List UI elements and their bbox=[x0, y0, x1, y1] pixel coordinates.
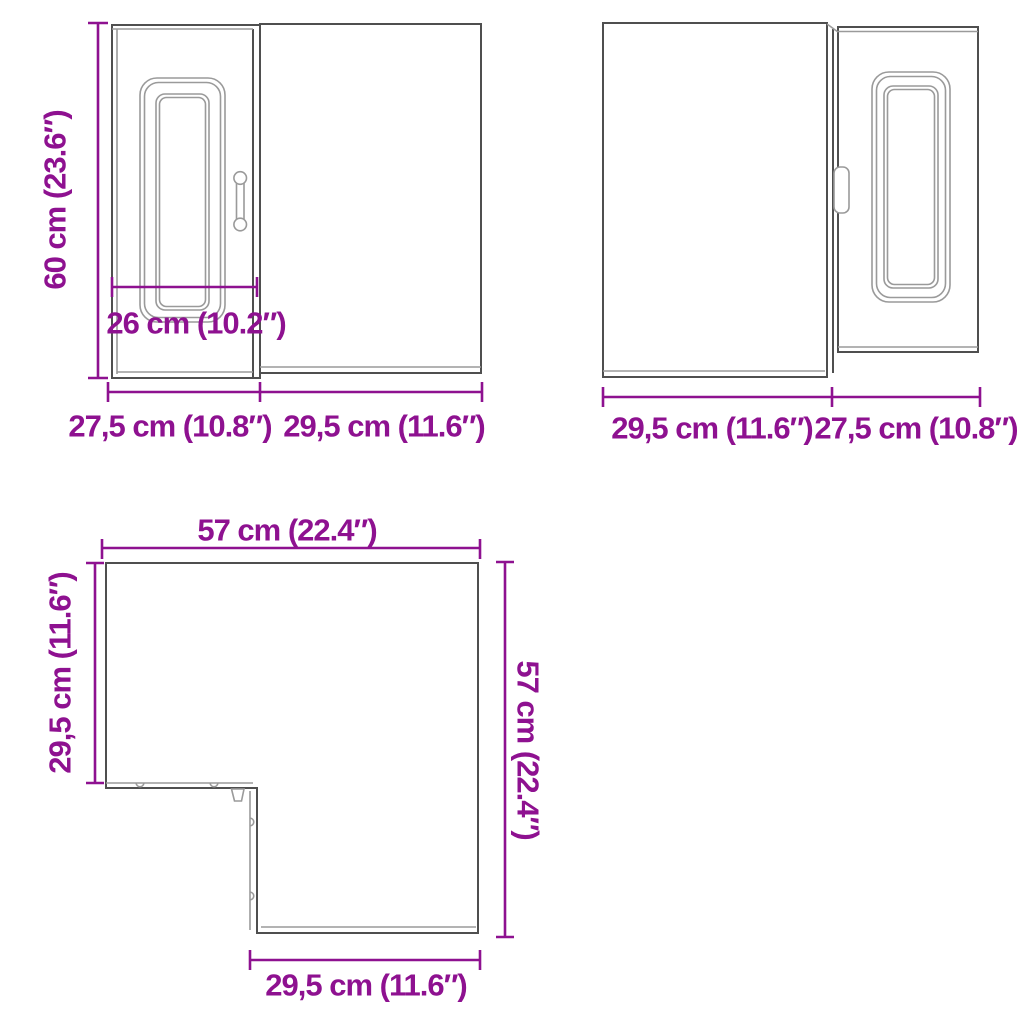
label-top-view-depth-left: 29,5 cm (11.6″) bbox=[45, 572, 76, 774]
door-handle bbox=[234, 172, 247, 231]
label-top-view-height-right: 57 cm (22.4″) bbox=[513, 660, 544, 839]
dimension-lines-view-b bbox=[603, 387, 980, 407]
top-plan-view bbox=[86, 539, 514, 970]
label-top-view-width: 57 cm (22.4″) bbox=[197, 515, 376, 546]
label-view-b-width-right: 27,5 cm (10.8″) bbox=[814, 413, 1017, 444]
label-top-view-width-bottom: 29,5 cm (11.6″) bbox=[265, 970, 467, 1001]
front-view-door-right bbox=[603, 23, 980, 407]
door-handle-edge bbox=[834, 167, 849, 213]
label-view-a-width-right: 29,5 cm (11.6″) bbox=[283, 411, 485, 442]
label-height-60cm: 60 cm (23.6″) bbox=[40, 110, 71, 289]
label-view-a-width-left: 27,5 cm (10.8″) bbox=[68, 411, 271, 442]
corner-handle-top bbox=[232, 789, 245, 801]
dimension-lines-top-view bbox=[86, 539, 514, 970]
front-view-door-left bbox=[88, 23, 482, 402]
dimension-diagram: 60 cm (23.6″) 26 cm (10.2″) 27,5 cm (10.… bbox=[0, 0, 1024, 1024]
label-door-width-26cm: 26 cm (10.2″) bbox=[106, 308, 285, 339]
cabinet-line-drawing bbox=[0, 0, 1024, 1024]
label-view-b-width-left: 29,5 cm (11.6″) bbox=[611, 413, 813, 444]
